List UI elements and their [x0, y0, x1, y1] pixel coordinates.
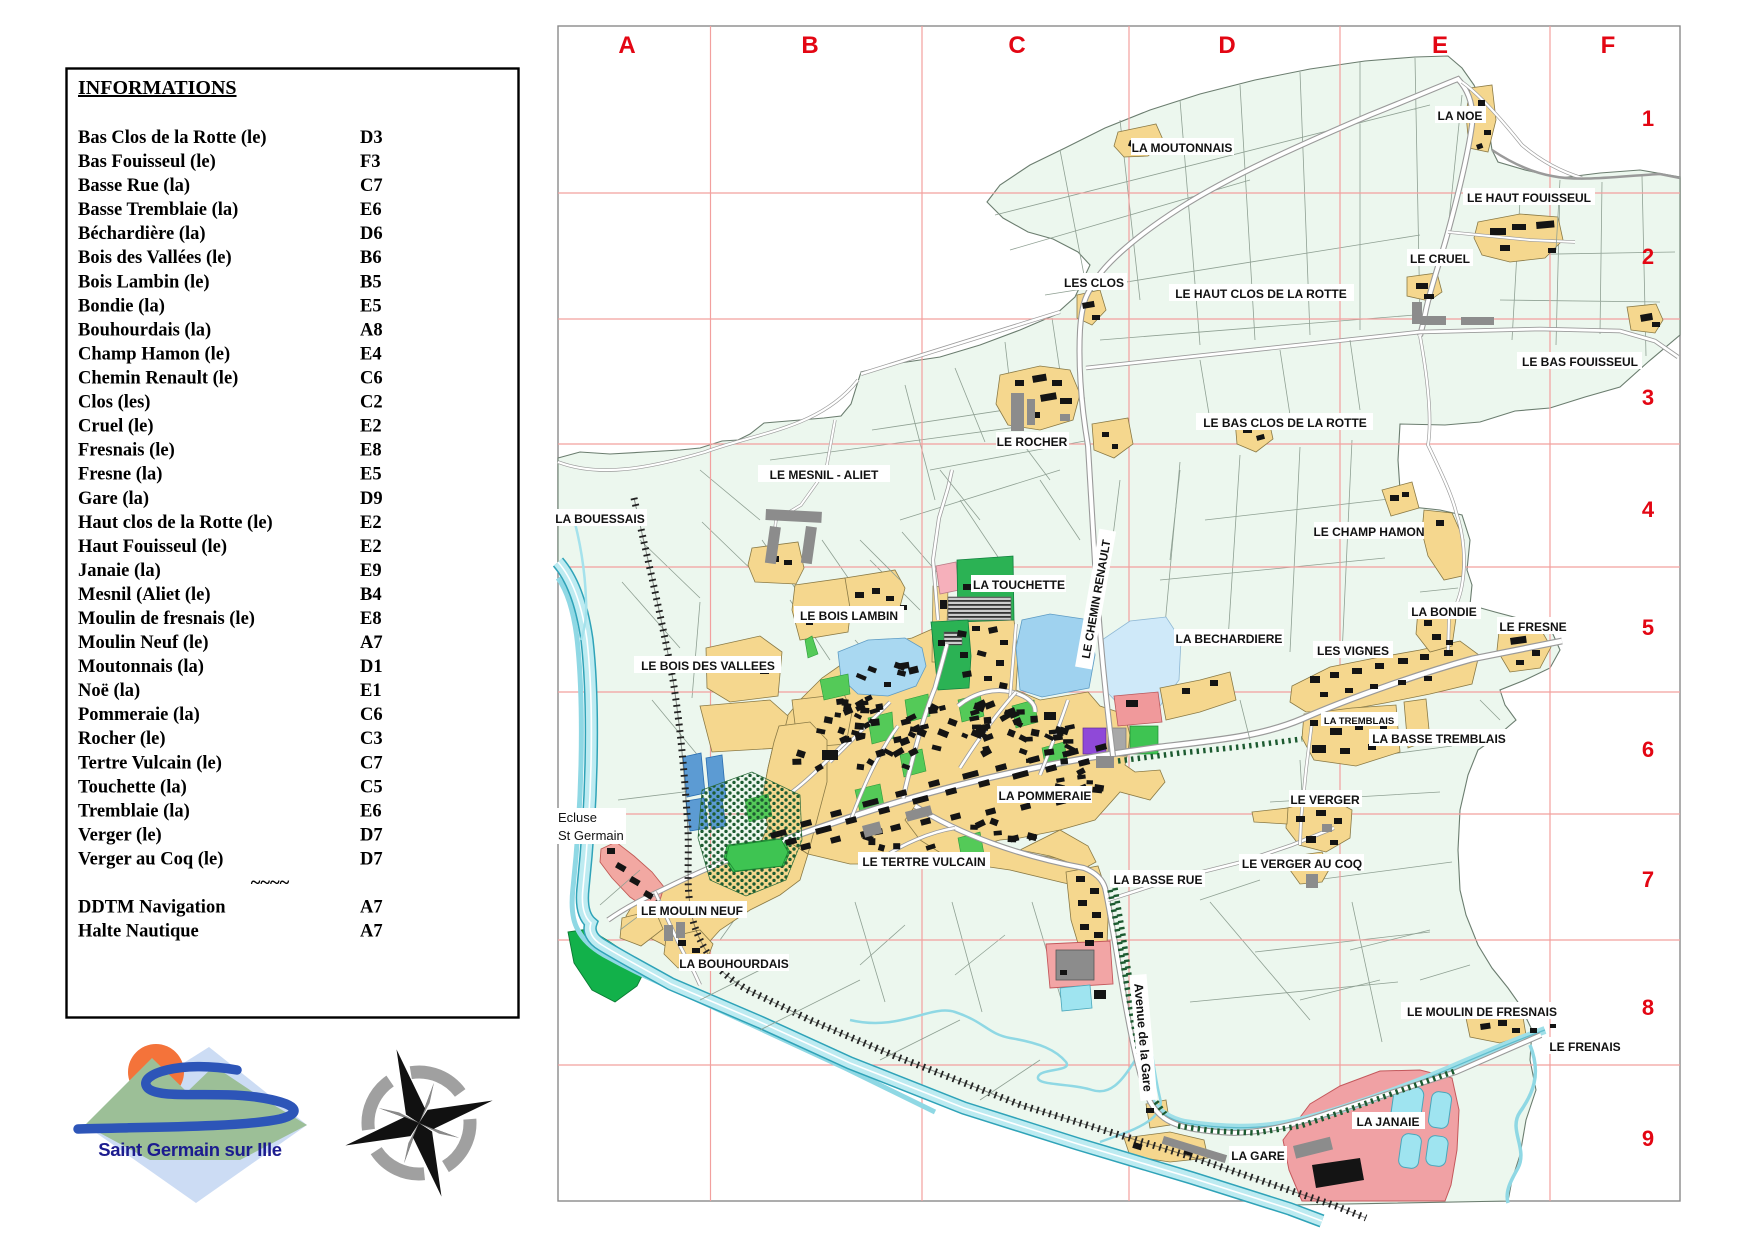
svg-text:B4: B4 — [360, 585, 382, 605]
svg-text:Rocher (le): Rocher (le) — [78, 729, 166, 749]
svg-text:E8: E8 — [360, 441, 382, 461]
svg-text:LE TERTRE VULCAIN: LE TERTRE VULCAIN — [862, 855, 985, 869]
svg-text:F: F — [1601, 32, 1616, 59]
svg-text:E2: E2 — [360, 417, 382, 437]
svg-text:Pommeraie (la): Pommeraie (la) — [78, 705, 200, 725]
svg-text:6: 6 — [1642, 737, 1654, 762]
svg-text:E2: E2 — [360, 513, 382, 533]
svg-text:E: E — [1432, 32, 1448, 59]
svg-text:Noë (la): Noë (la) — [78, 681, 140, 701]
svg-text:LE HAUT FOUISSEUL: LE HAUT FOUISSEUL — [1467, 191, 1591, 205]
svg-text:A8: A8 — [360, 320, 383, 340]
svg-text:~~~~: ~~~~ — [251, 874, 290, 894]
svg-text:2: 2 — [1642, 244, 1654, 269]
svg-text:D: D — [1218, 32, 1235, 59]
svg-text:Chemin Renault (le): Chemin Renault (le) — [78, 369, 238, 389]
svg-text:A7: A7 — [360, 633, 383, 653]
svg-text:Basse Tremblaie (la): Basse Tremblaie (la) — [78, 200, 238, 220]
svg-text:Clos (les): Clos (les) — [78, 393, 150, 413]
svg-text:Bas Fouisseul (le): Bas Fouisseul (le) — [78, 152, 216, 172]
svg-text:D1: D1 — [360, 657, 383, 677]
svg-text:LA BASSE RUE: LA BASSE RUE — [1114, 873, 1203, 887]
svg-text:Tertre Vulcain (le): Tertre Vulcain (le) — [78, 753, 222, 773]
svg-text:Bois des Vallées (le): Bois des Vallées (le) — [78, 248, 232, 268]
svg-text:Gare (la): Gare (la) — [78, 489, 149, 509]
svg-text:A7: A7 — [360, 922, 383, 942]
svg-text:Janaie (la): Janaie (la) — [78, 561, 161, 581]
svg-text:LE BAS CLOS DE LA ROTTE: LE BAS CLOS DE LA ROTTE — [1203, 416, 1367, 430]
svg-text:D7: D7 — [360, 850, 383, 870]
svg-text:St Germain: St Germain — [558, 828, 624, 843]
svg-text:E5: E5 — [360, 296, 382, 316]
svg-text:Champ Hamon (le): Champ Hamon (le) — [78, 345, 230, 365]
svg-text:LE CRUEL: LE CRUEL — [1410, 252, 1470, 266]
svg-text:B5: B5 — [360, 272, 382, 292]
svg-text:F3: F3 — [360, 152, 381, 172]
svg-text:5: 5 — [1642, 615, 1654, 640]
svg-text:Ecluse: Ecluse — [558, 810, 597, 825]
svg-text:Bondie (la): Bondie (la) — [78, 296, 165, 316]
svg-text:E8: E8 — [360, 609, 382, 629]
svg-text:LA TOUCHETTE: LA TOUCHETTE — [973, 578, 1065, 592]
svg-text:LE VERGER AU COQ: LE VERGER AU COQ — [1242, 857, 1362, 871]
svg-text:LA BOUESSAIS: LA BOUESSAIS — [555, 512, 645, 526]
svg-text:Moutonnais (la): Moutonnais (la) — [78, 657, 204, 677]
svg-text:C3: C3 — [360, 729, 383, 749]
svg-text:Haut Fouisseul (le): Haut Fouisseul (le) — [78, 537, 227, 557]
svg-text:INFORMATIONS: INFORMATIONS — [78, 77, 237, 99]
svg-text:LE VERGER: LE VERGER — [1290, 793, 1360, 807]
svg-text:LA POMMERAIE: LA POMMERAIE — [999, 789, 1092, 803]
svg-text:8: 8 — [1642, 995, 1654, 1020]
svg-text:E6: E6 — [360, 801, 382, 821]
svg-text:E2: E2 — [360, 537, 382, 557]
svg-text:7: 7 — [1642, 867, 1654, 892]
svg-text:Verger au Coq (le): Verger au Coq (le) — [78, 850, 223, 870]
svg-text:C7: C7 — [360, 176, 383, 196]
svg-text:C: C — [1008, 32, 1025, 59]
svg-text:D6: D6 — [360, 224, 383, 244]
svg-text:E5: E5 — [360, 465, 382, 485]
svg-text:D3: D3 — [360, 128, 383, 148]
svg-text:Béchardière (la): Béchardière (la) — [78, 224, 206, 244]
svg-text:Halte Nautique: Halte Nautique — [78, 922, 199, 942]
svg-text:C5: C5 — [360, 777, 383, 797]
svg-text:LA MOUTONNAIS: LA MOUTONNAIS — [1132, 141, 1233, 155]
svg-text:LA BONDIE: LA BONDIE — [1411, 605, 1477, 619]
svg-text:LES CLOS: LES CLOS — [1064, 276, 1124, 290]
svg-text:LA NOE: LA NOE — [1438, 109, 1483, 123]
svg-text:DDTM Navigation: DDTM Navigation — [78, 898, 226, 918]
svg-text:E9: E9 — [360, 561, 382, 581]
svg-text:B6: B6 — [360, 248, 382, 268]
svg-text:C6: C6 — [360, 369, 383, 389]
svg-text:E4: E4 — [360, 345, 382, 365]
svg-text:LE FRESNE: LE FRESNE — [1499, 620, 1566, 634]
svg-text:LA GARE: LA GARE — [1231, 1149, 1285, 1163]
svg-text:LE MESNIL - ALIET: LE MESNIL - ALIET — [770, 468, 879, 482]
svg-text:LE CHAMP HAMON: LE CHAMP HAMON — [1313, 525, 1424, 539]
svg-text:E1: E1 — [360, 681, 382, 701]
svg-text:LE FRENAIS: LE FRENAIS — [1549, 1040, 1620, 1054]
svg-text:LA BECHARDIERE: LA BECHARDIERE — [1176, 632, 1283, 646]
svg-text:Saint Germain sur Ille: Saint Germain sur Ille — [98, 1139, 282, 1160]
svg-text:LE MOULIN NEUF: LE MOULIN NEUF — [641, 904, 743, 918]
svg-text:LE BOIS DES VALLEES: LE BOIS DES VALLEES — [641, 659, 775, 673]
svg-text:B: B — [801, 32, 818, 59]
svg-text:LA JANAIE: LA JANAIE — [1357, 1115, 1420, 1129]
svg-text:Fresne (la): Fresne (la) — [78, 465, 162, 485]
svg-text:LE HAUT CLOS DE LA ROTTE: LE HAUT CLOS DE LA ROTTE — [1175, 287, 1347, 301]
svg-text:Basse Rue (la): Basse Rue (la) — [78, 176, 190, 196]
svg-text:Bouhourdais (la): Bouhourdais (la) — [78, 320, 211, 340]
svg-text:Touchette (la): Touchette (la) — [78, 777, 187, 797]
svg-text:LA BOUHOURDAIS: LA BOUHOURDAIS — [679, 957, 789, 971]
svg-text:Haut clos de la Rotte (le): Haut clos de la Rotte (le) — [78, 513, 273, 533]
svg-text:9: 9 — [1642, 1126, 1654, 1151]
svg-text:Verger (le): Verger (le) — [78, 826, 162, 846]
svg-text:Fresnais (le): Fresnais (le) — [78, 441, 175, 461]
svg-text:A: A — [618, 32, 635, 59]
svg-text:4: 4 — [1642, 497, 1655, 522]
svg-text:LE BOIS LAMBIN: LE BOIS LAMBIN — [800, 609, 898, 623]
svg-text:LES VIGNES: LES VIGNES — [1317, 644, 1389, 658]
svg-text:Cruel (le): Cruel (le) — [78, 417, 154, 437]
svg-text:Moulin de fresnais (le): Moulin de fresnais (le) — [78, 609, 255, 629]
svg-text:LE ROCHER: LE ROCHER — [997, 435, 1068, 449]
svg-text:1: 1 — [1642, 106, 1654, 131]
svg-text:C6: C6 — [360, 705, 383, 725]
svg-text:LE MOULIN DE FRESNAIS: LE MOULIN DE FRESNAIS — [1407, 1005, 1557, 1019]
svg-text:C2: C2 — [360, 393, 383, 413]
svg-text:Bois Lambin (le): Bois Lambin (le) — [78, 272, 210, 292]
svg-text:C7: C7 — [360, 753, 383, 773]
svg-text:D7: D7 — [360, 826, 383, 846]
svg-text:Tremblaie (la): Tremblaie (la) — [78, 801, 190, 821]
svg-text:LA BASSE TREMBLAIS: LA BASSE TREMBLAIS — [1372, 732, 1506, 746]
svg-text:E6: E6 — [360, 200, 382, 220]
svg-text:LA TREMBLAIS: LA TREMBLAIS — [1324, 716, 1394, 727]
svg-text:A7: A7 — [360, 898, 383, 918]
svg-text:Mesnil (Aliet (le): Mesnil (Aliet (le) — [78, 585, 211, 605]
svg-text:Moulin Neuf (le): Moulin Neuf (le) — [78, 633, 209, 653]
svg-text:D9: D9 — [360, 489, 383, 509]
svg-text:Bas Clos de la Rotte (le): Bas Clos de la Rotte (le) — [78, 128, 267, 148]
svg-text:LE BAS FOUISSEUL: LE BAS FOUISSEUL — [1522, 355, 1638, 369]
svg-text:3: 3 — [1642, 385, 1654, 410]
